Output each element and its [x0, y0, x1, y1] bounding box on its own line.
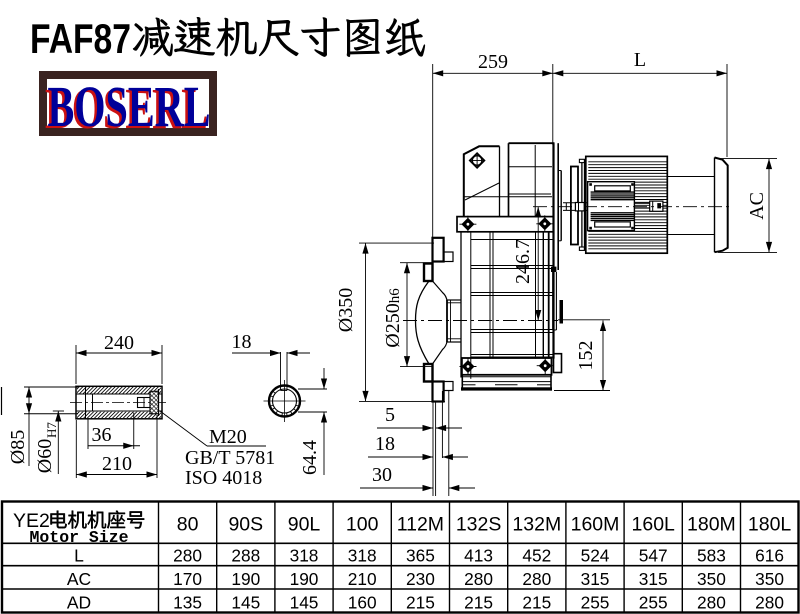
svg-text:160L: 160L [632, 514, 676, 536]
svg-text:318: 318 [290, 546, 319, 566]
svg-text:583: 583 [697, 546, 726, 566]
svg-text:350: 350 [697, 569, 726, 589]
svg-text:246.7: 246.7 [512, 239, 534, 284]
svg-text:365: 365 [406, 546, 435, 566]
svg-text:GB/T 5781: GB/T 5781 [185, 447, 275, 469]
svg-text:5: 5 [385, 404, 395, 426]
svg-text:215: 215 [406, 592, 435, 612]
svg-text:AD: AD [67, 592, 91, 612]
svg-text:160: 160 [348, 592, 377, 612]
svg-text:280: 280 [755, 592, 784, 612]
svg-text:90S: 90S [228, 514, 263, 536]
svg-text:152: 152 [575, 341, 597, 371]
svg-text:315: 315 [639, 569, 668, 589]
svg-text:288: 288 [231, 546, 260, 566]
svg-text:145: 145 [290, 592, 319, 612]
svg-text:350: 350 [755, 569, 784, 589]
svg-text:H7: H7 [44, 422, 59, 438]
svg-text:210: 210 [348, 569, 377, 589]
svg-text:30: 30 [372, 464, 392, 486]
svg-text:280: 280 [173, 546, 202, 566]
svg-text:547: 547 [639, 546, 668, 566]
svg-text:AC: AC [746, 192, 768, 220]
svg-text:Motor Size: Motor Size [29, 528, 128, 547]
svg-text:Ø250h6: Ø250h6 [382, 288, 404, 348]
svg-text:452: 452 [522, 546, 551, 566]
svg-text:80: 80 [177, 514, 199, 536]
svg-text:413: 413 [464, 546, 493, 566]
svg-text:145: 145 [231, 592, 260, 612]
svg-text:259: 259 [478, 51, 508, 73]
svg-text:180L: 180L [748, 514, 792, 536]
svg-text:M20: M20 [209, 426, 247, 448]
svg-text:170: 170 [173, 569, 202, 589]
svg-text:280: 280 [522, 569, 551, 589]
svg-text:FAF87: FAF87 [30, 15, 131, 62]
svg-text:18: 18 [375, 433, 395, 455]
svg-text:Ø350: Ø350 [335, 288, 357, 332]
svg-text:190: 190 [231, 569, 260, 589]
svg-text:132S: 132S [456, 514, 502, 536]
svg-text:132M: 132M [512, 514, 561, 536]
svg-text:616: 616 [755, 546, 784, 566]
svg-text:280: 280 [464, 569, 493, 589]
svg-text:210: 210 [102, 453, 132, 475]
svg-text:135: 135 [173, 592, 202, 612]
svg-text:524: 524 [581, 546, 610, 566]
svg-text:230: 230 [406, 569, 435, 589]
svg-text:240: 240 [104, 332, 134, 354]
svg-text:255: 255 [639, 592, 668, 612]
svg-text:L: L [634, 49, 646, 71]
svg-text:315: 315 [581, 569, 610, 589]
svg-text:64.4: 64.4 [299, 440, 321, 475]
svg-text:BOSERL: BOSERL [48, 74, 211, 139]
svg-text:Ø60: Ø60 [34, 439, 56, 473]
svg-text:215: 215 [464, 592, 493, 612]
svg-text:36: 36 [92, 424, 112, 446]
svg-text:112M: 112M [397, 514, 444, 536]
svg-text:318: 318 [348, 546, 377, 566]
svg-text:280: 280 [697, 592, 726, 612]
svg-text:160M: 160M [571, 514, 620, 536]
svg-text:255: 255 [581, 592, 610, 612]
svg-text:L: L [74, 546, 84, 566]
svg-text:100: 100 [346, 514, 379, 536]
svg-text:90L: 90L [288, 514, 321, 536]
svg-text:Ø85: Ø85 [7, 430, 29, 464]
svg-text:ISO 4018: ISO 4018 [185, 467, 262, 489]
svg-text:18: 18 [232, 331, 252, 353]
svg-text:AC: AC [67, 569, 91, 589]
svg-text:190: 190 [290, 569, 319, 589]
svg-text:215: 215 [522, 592, 551, 612]
svg-text:180M: 180M [687, 514, 736, 536]
